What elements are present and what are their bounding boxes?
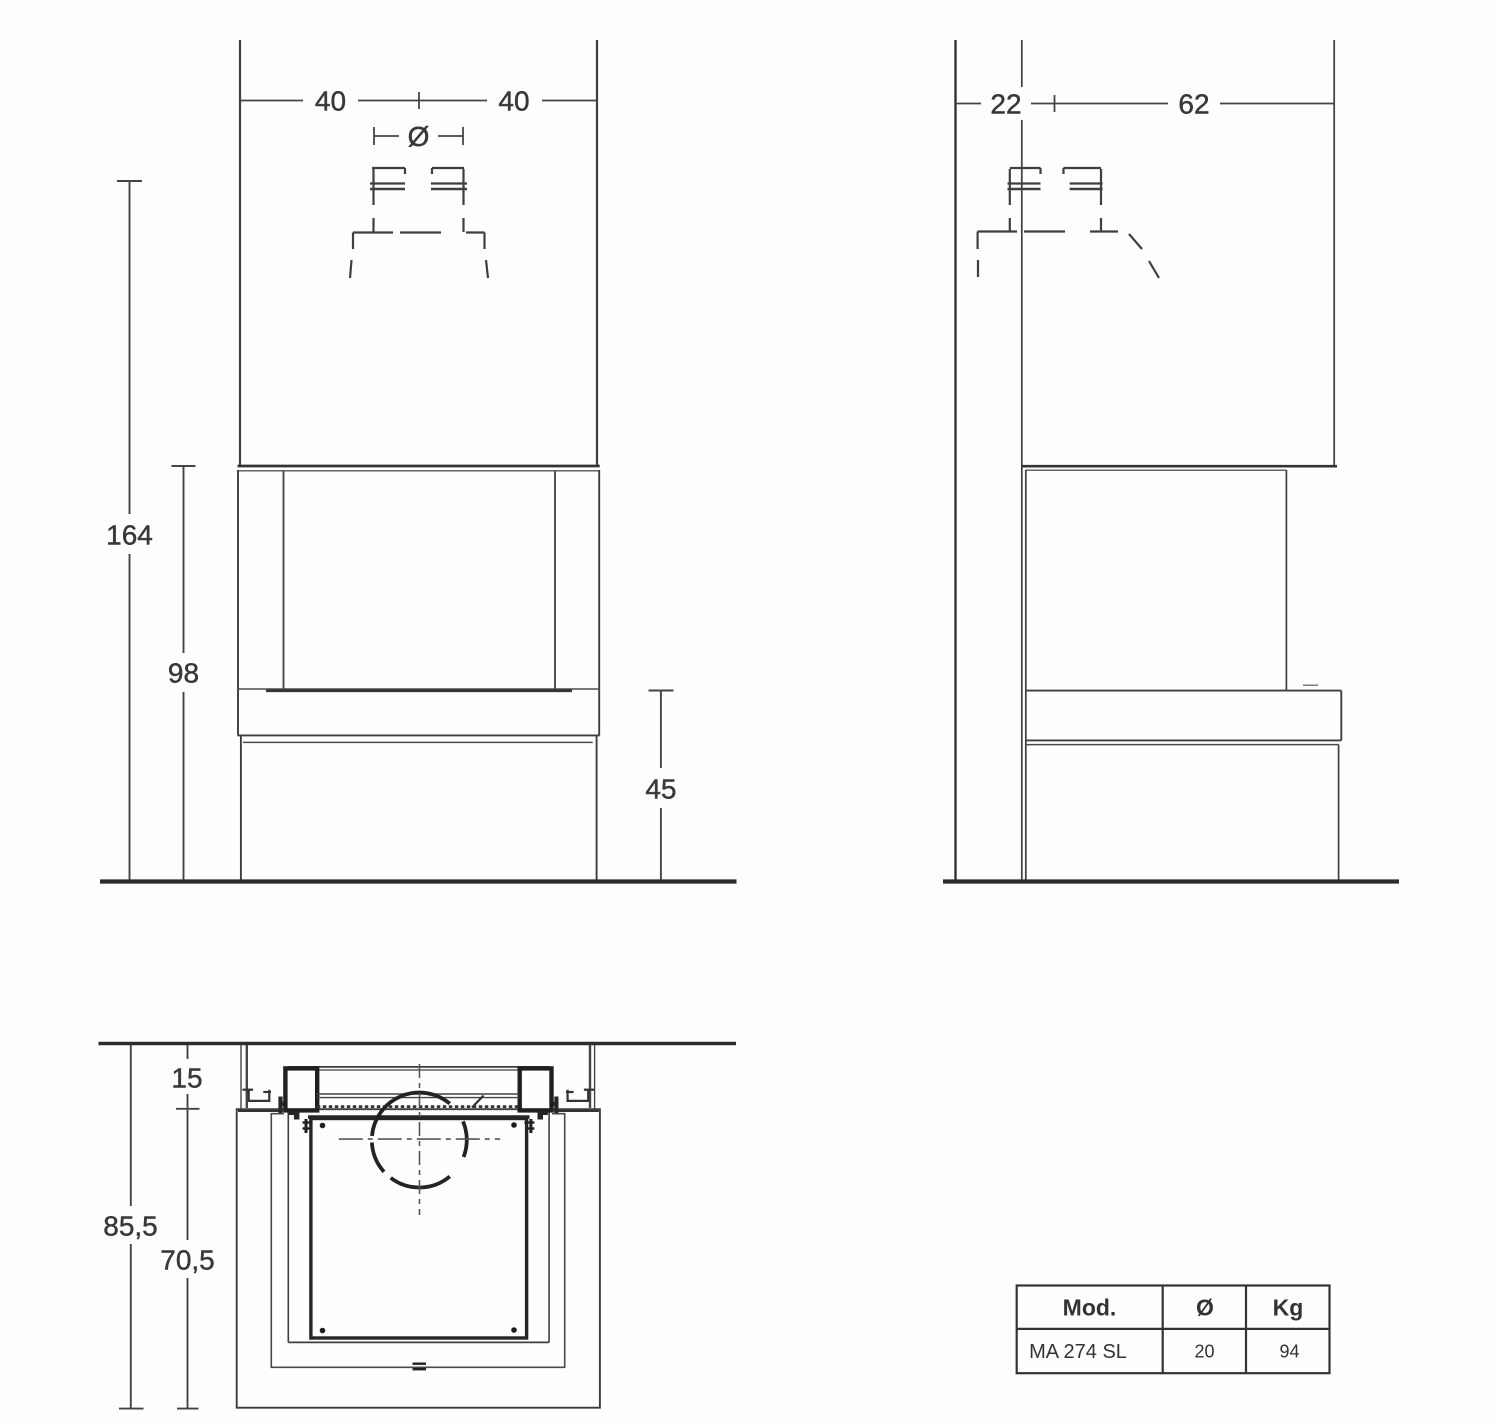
svg-text:Mod.: Mod. (1063, 1295, 1117, 1321)
svg-text:Ø: Ø (408, 121, 430, 152)
svg-text:164: 164 (106, 520, 153, 551)
svg-text:MA 274 SL: MA 274 SL (1029, 1341, 1127, 1363)
svg-text:62: 62 (1178, 89, 1209, 120)
svg-text:20: 20 (1194, 1342, 1214, 1362)
svg-text:15: 15 (171, 1063, 202, 1094)
svg-text:85,5: 85,5 (103, 1211, 158, 1242)
svg-text:45: 45 (645, 774, 676, 805)
svg-text:Ø: Ø (1196, 1295, 1214, 1321)
svg-text:Kg: Kg (1273, 1295, 1304, 1321)
svg-text:70,5: 70,5 (160, 1245, 215, 1276)
svg-text:40: 40 (315, 86, 346, 117)
svg-text:94: 94 (1279, 1342, 1299, 1362)
svg-text:22: 22 (990, 89, 1021, 120)
svg-text:40: 40 (498, 86, 529, 117)
svg-text:98: 98 (168, 658, 199, 689)
